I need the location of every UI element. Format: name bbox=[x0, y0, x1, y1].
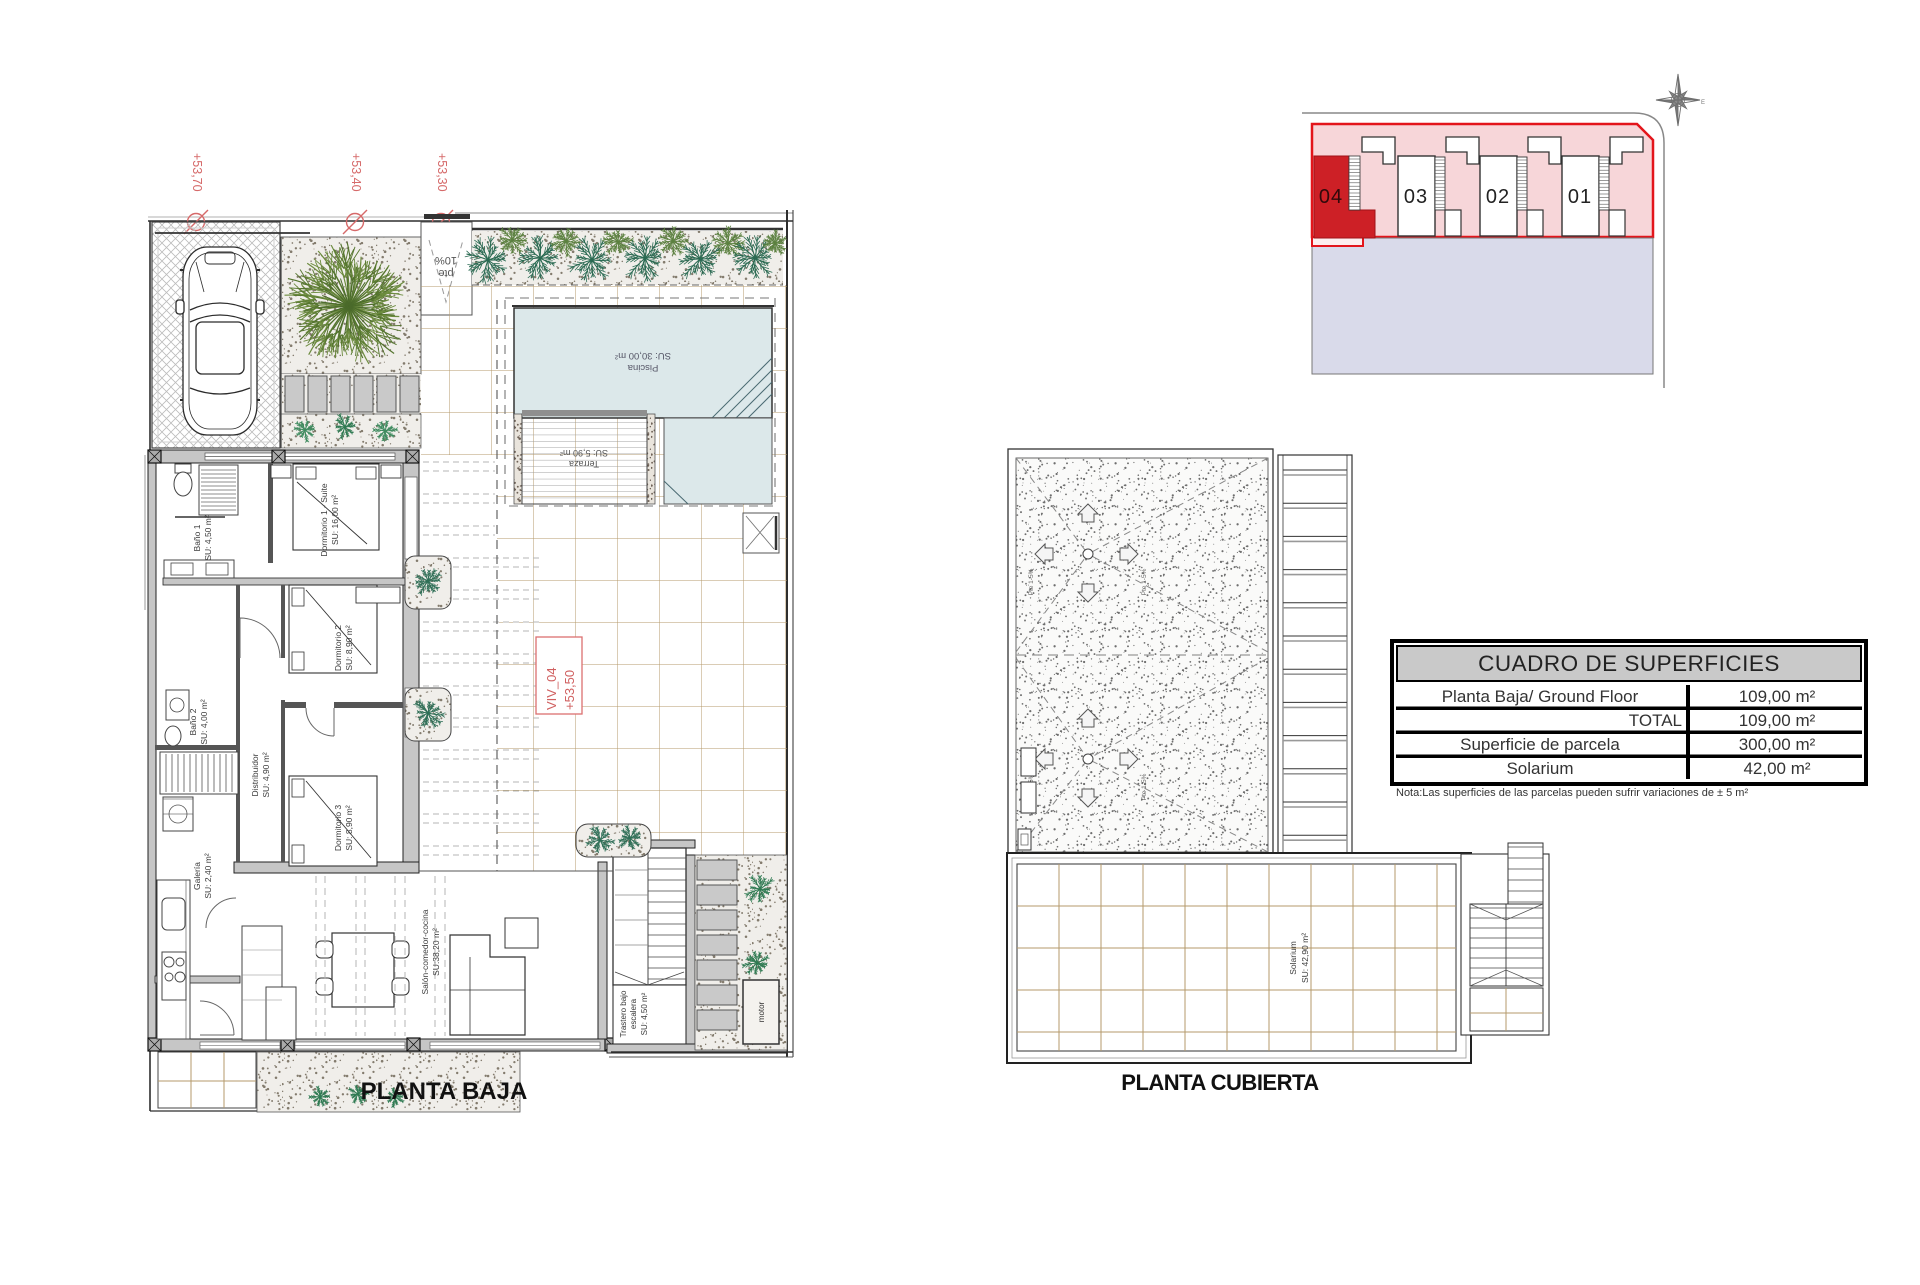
svg-text:PLANTA BAJA: PLANTA BAJA bbox=[361, 1078, 528, 1105]
svg-text:109,00 m²: 109,00 m² bbox=[1739, 711, 1816, 730]
svg-text:SU: 4,00 m²: SU: 4,00 m² bbox=[199, 699, 209, 745]
svg-text:+53,40: +53,40 bbox=[349, 153, 363, 192]
svg-text:Distribuidor: Distribuidor bbox=[250, 753, 260, 796]
svg-text:PLANTA CUBIERTA: PLANTA CUBIERTA bbox=[1121, 1070, 1319, 1095]
svg-text:SU: 4,50 m²: SU: 4,50 m² bbox=[203, 515, 213, 561]
svg-text:01: 01 bbox=[1568, 186, 1592, 208]
svg-text:E: E bbox=[1701, 100, 1705, 106]
svg-text:+53,30: +53,30 bbox=[435, 153, 449, 192]
svg-text:Baño 1: Baño 1 bbox=[192, 524, 202, 551]
svg-text:Nota:Las superficies de las pa: Nota:Las superficies de las parcelas pue… bbox=[1396, 787, 1748, 799]
svg-text:SU: 2,40 m²: SU: 2,40 m² bbox=[203, 853, 213, 899]
svg-text:04: 04 bbox=[1319, 186, 1343, 208]
svg-text:SU:38,20 m²: SU:38,20 m² bbox=[431, 928, 441, 976]
svg-text:Dormitorio 1 - Suite: Dormitorio 1 - Suite bbox=[319, 483, 329, 556]
svg-text:Superficie de parcela: Superficie de parcela bbox=[1460, 735, 1620, 754]
svg-text:Piscina: Piscina bbox=[627, 362, 658, 373]
svg-text:Pte 1-5%: Pte 1-5% bbox=[1141, 773, 1148, 800]
svg-text:Planta Baja/ Ground Floor: Planta Baja/ Ground Floor bbox=[1442, 687, 1639, 706]
svg-text:Galería: Galería bbox=[192, 862, 202, 890]
svg-text:Dormitorio 3: Dormitorio 3 bbox=[333, 805, 343, 852]
svg-text:motor: motor bbox=[757, 1001, 766, 1022]
svg-text:SU: 8,90 m²: SU: 8,90 m² bbox=[344, 805, 354, 851]
svg-text:SU: 8,90 m²: SU: 8,90 m² bbox=[344, 625, 354, 671]
svg-text:Salón-comedor-cocina: Salón-comedor-cocina bbox=[420, 909, 430, 994]
svg-text:Pte 1-5%: Pte 1-5% bbox=[1028, 568, 1035, 595]
svg-text:+53,50: +53,50 bbox=[562, 670, 577, 710]
svg-text:SU: 42,90 m²: SU: 42,90 m² bbox=[1300, 933, 1310, 983]
svg-text:Terraza: Terraza bbox=[569, 459, 599, 469]
svg-text:10%: 10% bbox=[435, 254, 457, 266]
svg-text:SU: 5,90 m²: SU: 5,90 m² bbox=[560, 448, 608, 458]
svg-text:SU: 4,50 m²: SU: 4,50 m² bbox=[640, 992, 649, 1035]
svg-text:Baño 2: Baño 2 bbox=[188, 708, 198, 735]
svg-text:109,00 m²: 109,00 m² bbox=[1739, 687, 1816, 706]
svg-text:pte: pte bbox=[438, 267, 453, 279]
svg-text:SU: 16,00 m²: SU: 16,00 m² bbox=[330, 495, 340, 545]
svg-text:TOTAL: TOTAL bbox=[1629, 711, 1682, 730]
svg-text:Solarium: Solarium bbox=[1288, 941, 1298, 975]
svg-text:42,00 m²: 42,00 m² bbox=[1743, 759, 1810, 778]
svg-text:02: 02 bbox=[1486, 186, 1510, 208]
svg-text:SU: 4,90 m²: SU: 4,90 m² bbox=[261, 752, 271, 798]
svg-text:CUADRO DE SUPERFICIES: CUADRO DE SUPERFICIES bbox=[1478, 651, 1780, 676]
svg-text:SU: 30,00 m²: SU: 30,00 m² bbox=[615, 350, 671, 361]
svg-text:03: 03 bbox=[1404, 186, 1428, 208]
svg-text:Solarium: Solarium bbox=[1506, 759, 1573, 778]
svg-text:Trastero bajo: Trastero bajo bbox=[619, 990, 628, 1037]
svg-text:escalera: escalera bbox=[629, 998, 638, 1029]
svg-text:+53,70: +53,70 bbox=[190, 153, 204, 192]
svg-text:300,00 m²: 300,00 m² bbox=[1739, 735, 1816, 754]
svg-text:Pte 1-5%: Pte 1-5% bbox=[1141, 568, 1148, 595]
svg-text:VIV_04: VIV_04 bbox=[544, 667, 559, 710]
svg-text:Dormitorio 2: Dormitorio 2 bbox=[333, 625, 343, 672]
